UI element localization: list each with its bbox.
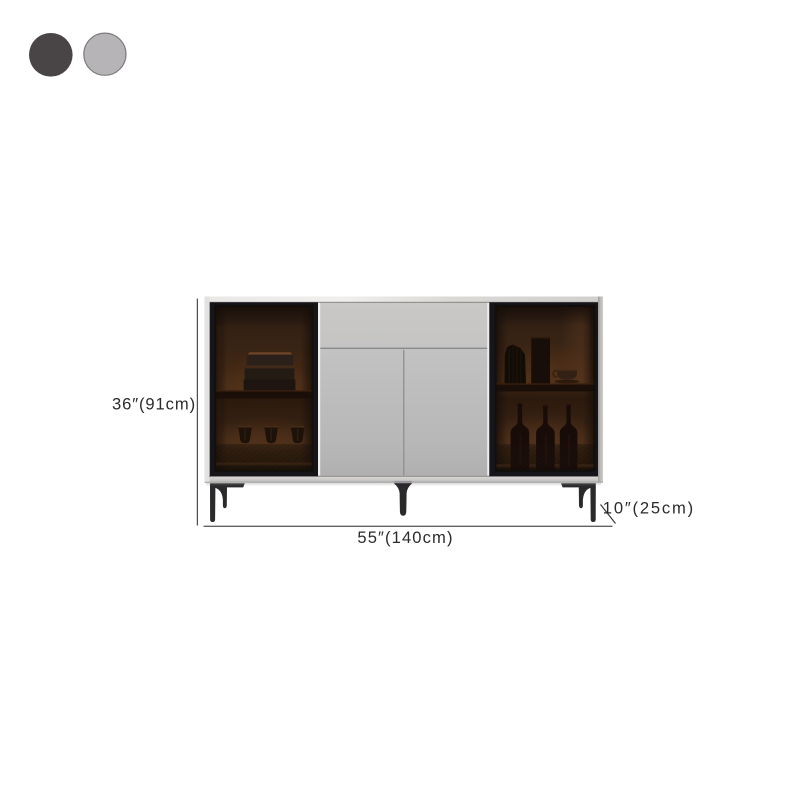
svg-text:55″(140cm): 55″(140cm) [357,528,453,547]
svg-text:36″(91cm): 36″(91cm) [112,395,196,414]
svg-text:10″(25cm): 10″(25cm) [603,498,695,517]
